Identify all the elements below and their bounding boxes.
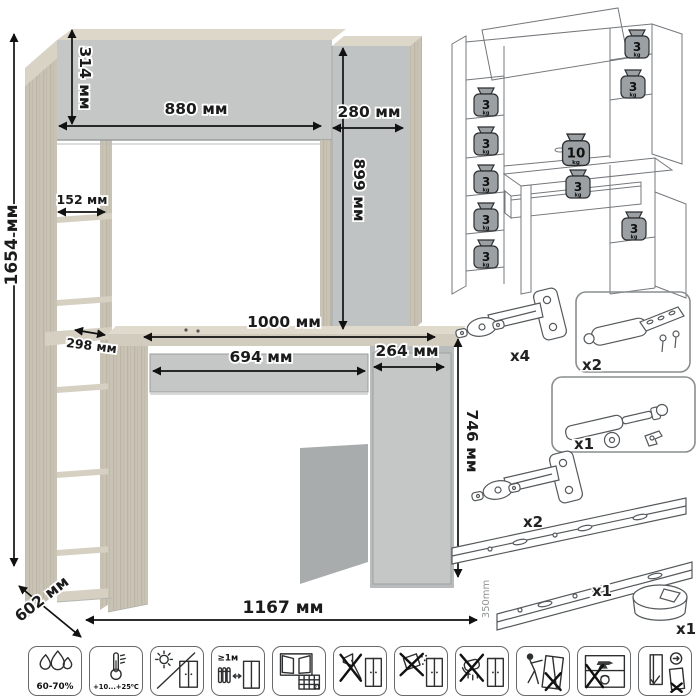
weight-3kg: 3kg	[621, 70, 645, 99]
hardware-qty-slides: x1	[592, 582, 612, 600]
care-icon-temperature: +10...+25⁰C	[89, 646, 143, 696]
pedestal-door	[373, 353, 451, 584]
svg-text:kg: kg	[634, 53, 641, 59]
hardware-qty-grommet: x1	[676, 620, 696, 638]
no-heavy-load-icon	[579, 649, 629, 693]
care-icon-humidity: 60-70%	[28, 646, 82, 696]
top-cabinet-top-face	[57, 29, 346, 40]
care-icon-no-dragging	[516, 646, 570, 696]
radiator-distance-icon: ≥1м	[213, 649, 263, 693]
care-icon-radiator-distance: ≥1м	[211, 646, 265, 696]
dim-desk-height-label: 746 мм	[463, 409, 481, 472]
svg-text:kg: kg	[630, 93, 637, 99]
svg-text:21: 21	[314, 685, 320, 691]
hardware-qty-gaslift: x1	[574, 435, 594, 453]
weight-3kg: 3kg	[625, 30, 649, 59]
svg-text:kg: kg	[575, 193, 582, 199]
pedestal-inner-side	[300, 444, 368, 584]
drawer-slide-length: 350mm	[481, 580, 492, 619]
no-wet-cloth-icon	[457, 649, 507, 693]
svg-text:+10...+25⁰C: +10...+25⁰C	[93, 683, 139, 691]
dim-top-cabinet-height-label: 314 мм	[76, 46, 94, 109]
weight-3kg: 3kg	[474, 165, 498, 194]
care-icon-no-sharp-tools	[333, 646, 387, 696]
weight-3kg: 3kg	[474, 88, 498, 117]
care-icons-row: 60-70% +10...+25⁰C ≥1м	[28, 646, 692, 696]
right-cabinet-side-edge	[410, 36, 422, 333]
svg-text:kg: kg	[572, 160, 580, 166]
no-dragging-icon	[518, 649, 568, 693]
dim-desktop-width-label: 1000 мм	[247, 313, 321, 331]
svg-text:≥1м: ≥1м	[217, 653, 238, 663]
door-adjustment-icon	[640, 649, 690, 693]
hinge-icon-small	[471, 450, 583, 504]
dim-total-width-label: 1167 мм	[242, 598, 323, 618]
sun-cabinet-icon	[152, 649, 202, 693]
weight-3kg: 3kg	[474, 240, 498, 269]
humidity-icon: 60-70%	[30, 649, 80, 693]
care-icon-no-wet-cleaning	[455, 646, 509, 696]
dim-side-cabinet-height-label: 899 мм	[350, 158, 368, 221]
load-capacity-drawing: 3kg 3kg 3kg 3kg 3kg 3kg 3kg 10kg 3kg 3kg	[452, 8, 686, 298]
thermometer-icon: +10...+25⁰C	[91, 649, 141, 693]
instruction-artwork: 1654 мм 314 мм 880 мм 280 мм 899 мм 152 …	[0, 0, 700, 700]
svg-text:kg: kg	[483, 263, 490, 269]
hardware-qty-damper: x2	[582, 356, 602, 374]
weight-3kg: 3kg	[474, 127, 498, 156]
open-pedestal-door	[655, 192, 686, 298]
dim-total-height-label: 1654 мм	[2, 204, 22, 285]
care-icon-ventilation: 21	[272, 646, 326, 696]
no-abrasive-powder-icon	[396, 649, 446, 693]
svg-text:kg: kg	[631, 235, 638, 241]
hardware-qty-hinge4: x4	[510, 347, 530, 365]
dim-drawer-width-label: 694 мм	[229, 348, 292, 366]
weight-3kg: 3kg	[474, 203, 498, 232]
dim-top-cabinet-width-label: 880 мм	[164, 100, 227, 118]
dim-side-cabinet-width-label: 280 мм	[337, 103, 400, 121]
hinge-icon	[455, 287, 567, 341]
desk-left-panel	[108, 346, 148, 612]
care-icon-no-direct-sunlight	[150, 646, 204, 696]
care-icon-no-overloading	[577, 646, 631, 696]
dim-pedestal-width-label: 264 мм	[375, 342, 438, 360]
svg-text:kg: kg	[483, 111, 490, 117]
open-right-door	[652, 24, 682, 164]
weight-10kg: 10kg	[563, 134, 590, 166]
right-cabinet-top-face	[332, 36, 422, 46]
svg-text:kg: kg	[483, 188, 490, 194]
hardware-section: x4 x2 x1	[452, 287, 696, 638]
svg-text:kg: kg	[483, 150, 490, 156]
open-drawer	[505, 191, 511, 218]
care-icon-no-abrasives	[394, 646, 448, 696]
svg-text:60-70%: 60-70%	[37, 682, 74, 692]
weight-3kg: 3kg	[622, 212, 646, 241]
no-axe-icon	[335, 649, 385, 693]
dim-shelf-depth-label: 152 мм	[57, 192, 108, 207]
right-cabinet-inner-edge	[320, 140, 332, 333]
svg-text:kg: kg	[483, 226, 490, 232]
window-calendar-icon: 21	[274, 649, 324, 693]
assembly-instruction-sheet: 1654 мм 314 мм 880 мм 280 мм 899 мм 152 …	[0, 0, 700, 700]
cable-grommet-icon	[633, 585, 687, 620]
hardware-qty-hinge2: x2	[523, 513, 543, 531]
care-icon-door-adjustment	[638, 646, 692, 696]
top-cabinet-front	[57, 40, 332, 140]
